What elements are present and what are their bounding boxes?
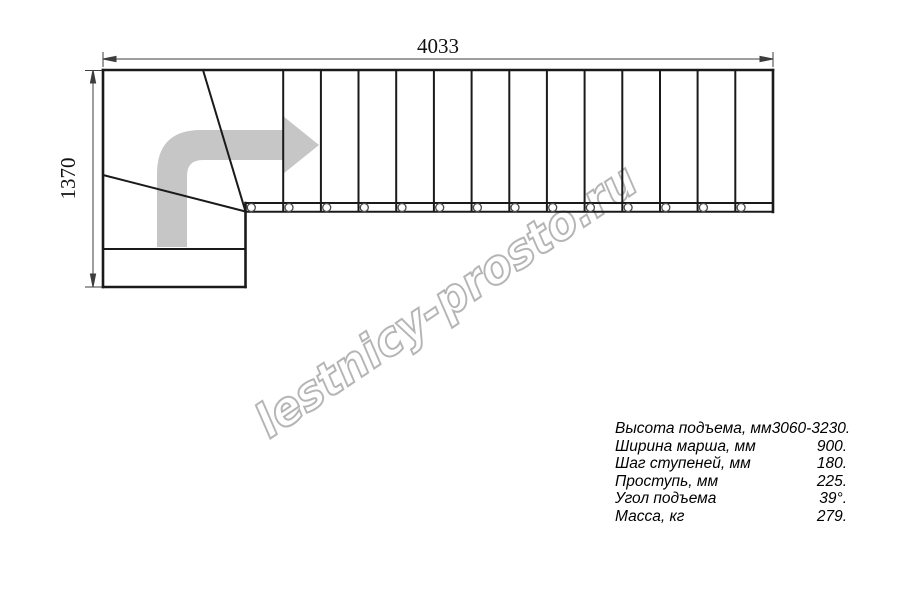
spec-label: Ширина марша, мм (615, 438, 756, 456)
dimension-length-label: 4033 (417, 34, 459, 58)
staircase-plan-canvas: lestnicy-prosto.ru (0, 0, 900, 600)
dim-arrow-up-icon (90, 70, 95, 83)
baluster-circle (737, 204, 745, 212)
dim-arrow-left-icon (103, 56, 116, 61)
spec-value: 900. (817, 438, 847, 456)
baluster-circle (323, 204, 331, 212)
baluster-circle (360, 204, 368, 212)
spec-row: Угол подъема39°. (615, 490, 847, 508)
spec-row: Проступь, мм225. (615, 473, 847, 491)
baluster-circle (624, 204, 632, 212)
spec-label: Проступь, мм (615, 473, 718, 491)
baluster-circle (247, 204, 255, 212)
spec-label: Шаг ступеней, мм (615, 455, 751, 473)
spec-row: Шаг ступеней, мм180. (615, 455, 847, 473)
watermark-text: lestnicy-prosto.ru (245, 153, 647, 449)
spec-value: 225. (817, 473, 847, 491)
spec-value: 279. (817, 508, 847, 526)
baluster-circle (586, 204, 594, 212)
baluster-circle (285, 204, 293, 212)
dimension-width-label: 1370 (56, 158, 80, 200)
baluster-circle (511, 204, 519, 212)
direction-arrow-icon (157, 116, 319, 247)
baluster-circle (662, 204, 670, 212)
spec-row: Масса, кг279. (615, 508, 847, 526)
dim-arrow-down-icon (90, 274, 95, 287)
spec-label: Угол подъема (615, 490, 716, 508)
baluster-circle (549, 204, 557, 212)
spec-value: 39°. (819, 490, 847, 508)
baluster-circle (436, 204, 444, 212)
spec-list: Высота подъема, мм3060-3230.Ширина марша… (615, 420, 847, 525)
dim-arrow-right-icon (760, 56, 773, 61)
spec-label: Масса, кг (615, 508, 684, 526)
baluster-circle (473, 204, 481, 212)
baluster-circle (699, 204, 707, 212)
baluster-circle (398, 204, 406, 212)
tread-lines (283, 70, 735, 212)
spec-row: Высота подъема, мм3060-3230. (615, 420, 847, 438)
dimension-width (85, 70, 102, 287)
spec-value: 3060-3230. (772, 420, 850, 438)
spec-label: Высота подъема, мм (615, 420, 772, 438)
spec-value: 180. (817, 455, 847, 473)
baluster-circles (247, 204, 745, 212)
spec-row: Ширина марша, мм900. (615, 438, 847, 456)
stair-outline (103, 70, 773, 287)
